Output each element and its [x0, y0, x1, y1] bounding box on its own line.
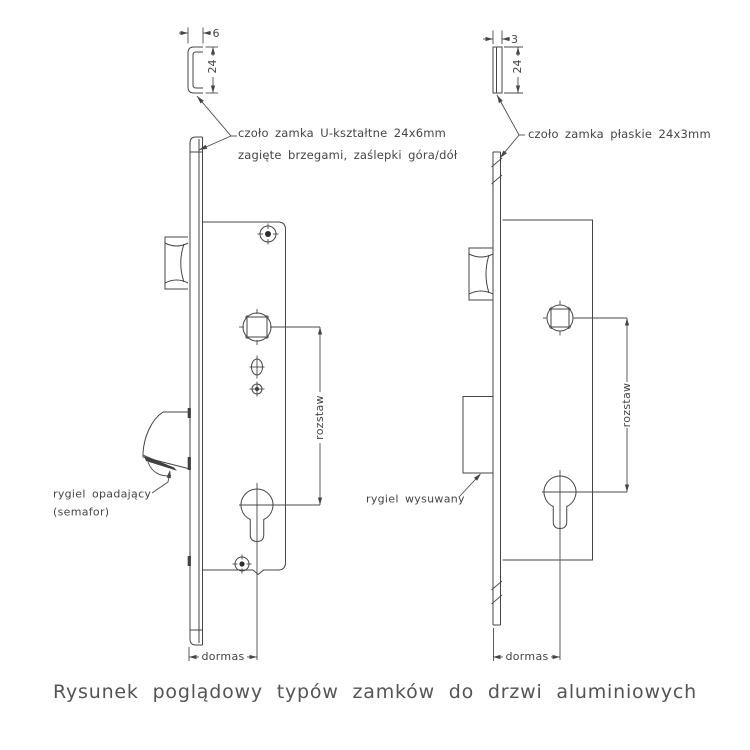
right-faceplate-note: czoło zamka płaskie 24x3mm — [528, 127, 711, 141]
left-roller-latch-top-arc — [165, 243, 188, 246]
left-note-leader-arrow-lower-icon — [199, 145, 207, 150]
left-faceplate-note-line2: zagięte brzegami, zaślepki góra/dół — [238, 148, 458, 162]
left-lock-case — [203, 222, 286, 575]
right-roller-latch-barrel-arc — [486, 255, 489, 293]
left-roller-latch-barrel-arc — [181, 244, 184, 282]
left-depth-dim-arrow-left-icon — [203, 31, 211, 35]
left-top-screw-center — [265, 231, 271, 237]
left-depth-dim-arrow-right-icon — [181, 31, 189, 35]
left-backset-arrow-left-icon — [189, 655, 197, 659]
left-height-dim-arrow-up-icon — [211, 47, 215, 55]
right-depth-dim-arrow-right-icon — [486, 37, 494, 41]
right-note-leader-arrow-lower-icon — [500, 151, 507, 159]
right-profile-height-value: 24 — [511, 60, 524, 74]
drawing-caption: Rysunek poglądowy typów zamków do drzwi … — [53, 681, 697, 703]
right-spacing-arrow-down-icon — [625, 485, 629, 493]
right-depth-dim-arrow-left-icon — [502, 37, 510, 41]
right-bolt-note: rygiel wysuwany — [366, 493, 465, 506]
right-spacing-arrow-up-icon — [625, 318, 629, 326]
left-height-dim-arrow-down-icon — [211, 86, 215, 94]
drawing-svg: 6 24 czoło zamka U-kształtne 24x6mm zagi… — [0, 0, 750, 750]
left-spacing-dim-label: rozstaw — [313, 395, 326, 440]
right-sliding-bolt — [463, 397, 493, 474]
right-height-dim-arrow-down-icon — [516, 86, 520, 94]
left-faceplate-outline — [190, 137, 203, 645]
right-roller-latch-top-arc — [469, 254, 493, 257]
left-spacing-arrow-up-icon — [318, 327, 322, 335]
left-roller-latch-bottom-arc — [165, 280, 188, 283]
left-spacing-arrow-down-icon — [318, 498, 322, 506]
right-backset-dim-label: dormas — [505, 650, 548, 663]
left-u-profile-inner — [193, 52, 203, 88]
right-spacing-dim-label: rozstaw — [620, 383, 633, 428]
right-note-leader-arrow-upper-icon — [497, 95, 503, 103]
right-backset-arrow-left-icon — [493, 655, 501, 659]
left-bolt-note-line1: rygiel opadający — [53, 488, 151, 501]
left-bolt-note-line2: (semafor) — [53, 506, 109, 519]
left-faceplate-slot-mark-1 — [188, 408, 191, 418]
right-profile-depth-value: 3 — [511, 33, 518, 46]
right-backset-arrow-right-icon — [553, 655, 561, 659]
left-bolt-leader-arrow-icon — [167, 470, 171, 478]
right-roller-latch-bottom-arc — [469, 291, 493, 294]
right-height-dim-arrow-up-icon — [516, 47, 520, 55]
left-faceplate-note-line1: czoło zamka U-kształtne 24x6mm — [238, 126, 446, 140]
right-lock-case — [503, 220, 593, 560]
left-profile-height-value: 24 — [206, 60, 219, 74]
lock-types-technical-drawing: 6 24 czoło zamka U-kształtne 24x6mm zagi… — [0, 0, 750, 750]
left-bottom-screw-center — [239, 561, 244, 566]
left-u-profile-outer — [188, 47, 203, 93]
left-profile-depth-value: 6 — [213, 27, 220, 40]
left-backset-arrow-right-icon — [250, 655, 258, 659]
left-backset-dim-label: dormas — [201, 650, 244, 663]
left-faceplate-slot-mark-3 — [188, 556, 191, 566]
right-flat-profile-outline — [493, 47, 502, 93]
